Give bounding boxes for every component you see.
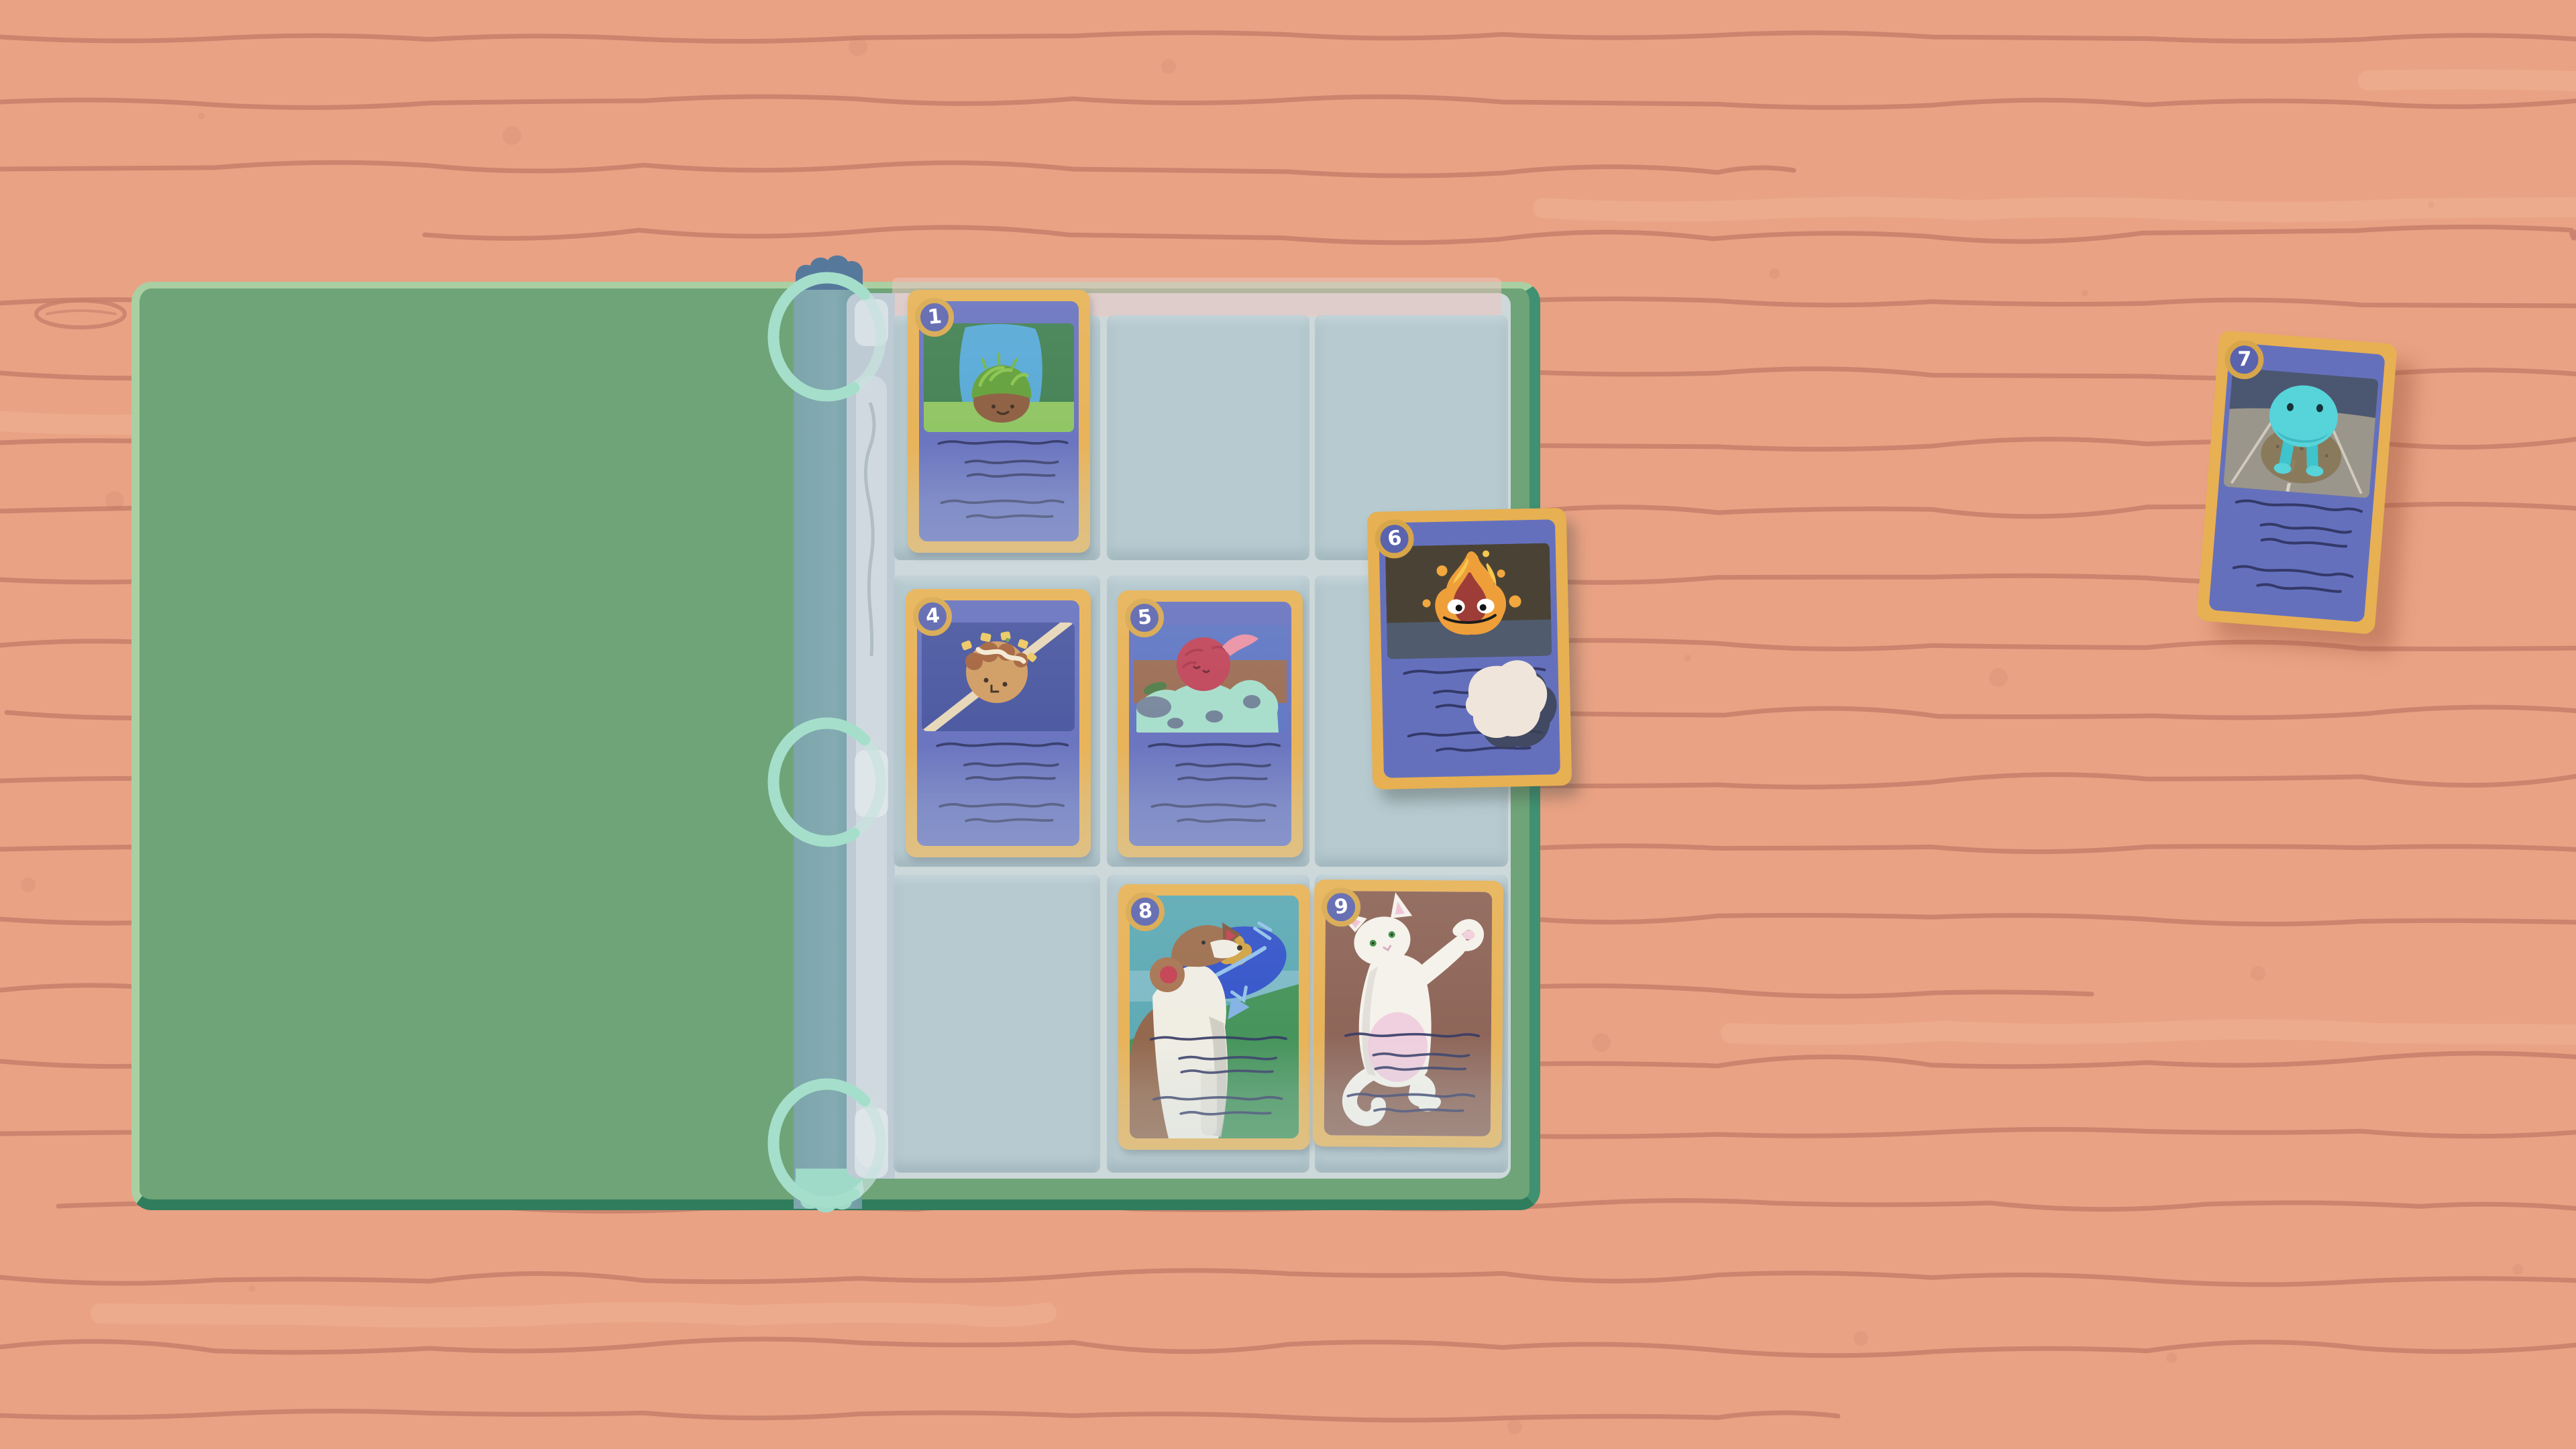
card-number-badge: 8 [1126, 892, 1165, 931]
binder-ring-middle [773, 723, 881, 841]
card-number-badge: 1 [915, 298, 954, 337]
card-text-lines [2196, 330, 2398, 635]
binder-ring-bottom [773, 1084, 881, 1202]
card-4[interactable]: 4 [906, 589, 1091, 857]
pocket-r1-c2[interactable] [1107, 315, 1309, 560]
card-number: 6 [1387, 528, 1403, 549]
card-number-badge: 5 [1125, 598, 1164, 637]
game-scene: 1 4 [0, 0, 2576, 1449]
card-number-badge: 9 [1322, 888, 1360, 926]
pocket-r3-c1[interactable] [894, 875, 1100, 1173]
card-8[interactable]: 8 [1118, 884, 1310, 1150]
card-number: 5 [1136, 607, 1152, 629]
card-number: 4 [924, 606, 940, 627]
card-7[interactable]: 7 [2196, 330, 2398, 635]
card-number: 1 [926, 307, 942, 328]
card-number: 8 [1137, 901, 1152, 922]
card-5[interactable]: 5 [1118, 590, 1303, 857]
card-9[interactable]: 9 [1313, 879, 1504, 1148]
card-1[interactable]: 1 [908, 290, 1090, 553]
card-6[interactable]: 6 [1367, 508, 1572, 790]
card-number: 7 [2237, 350, 2251, 370]
binder-ring-top [773, 278, 881, 396]
card-number: 9 [1333, 897, 1348, 918]
card-number-badge: 4 [913, 597, 952, 636]
